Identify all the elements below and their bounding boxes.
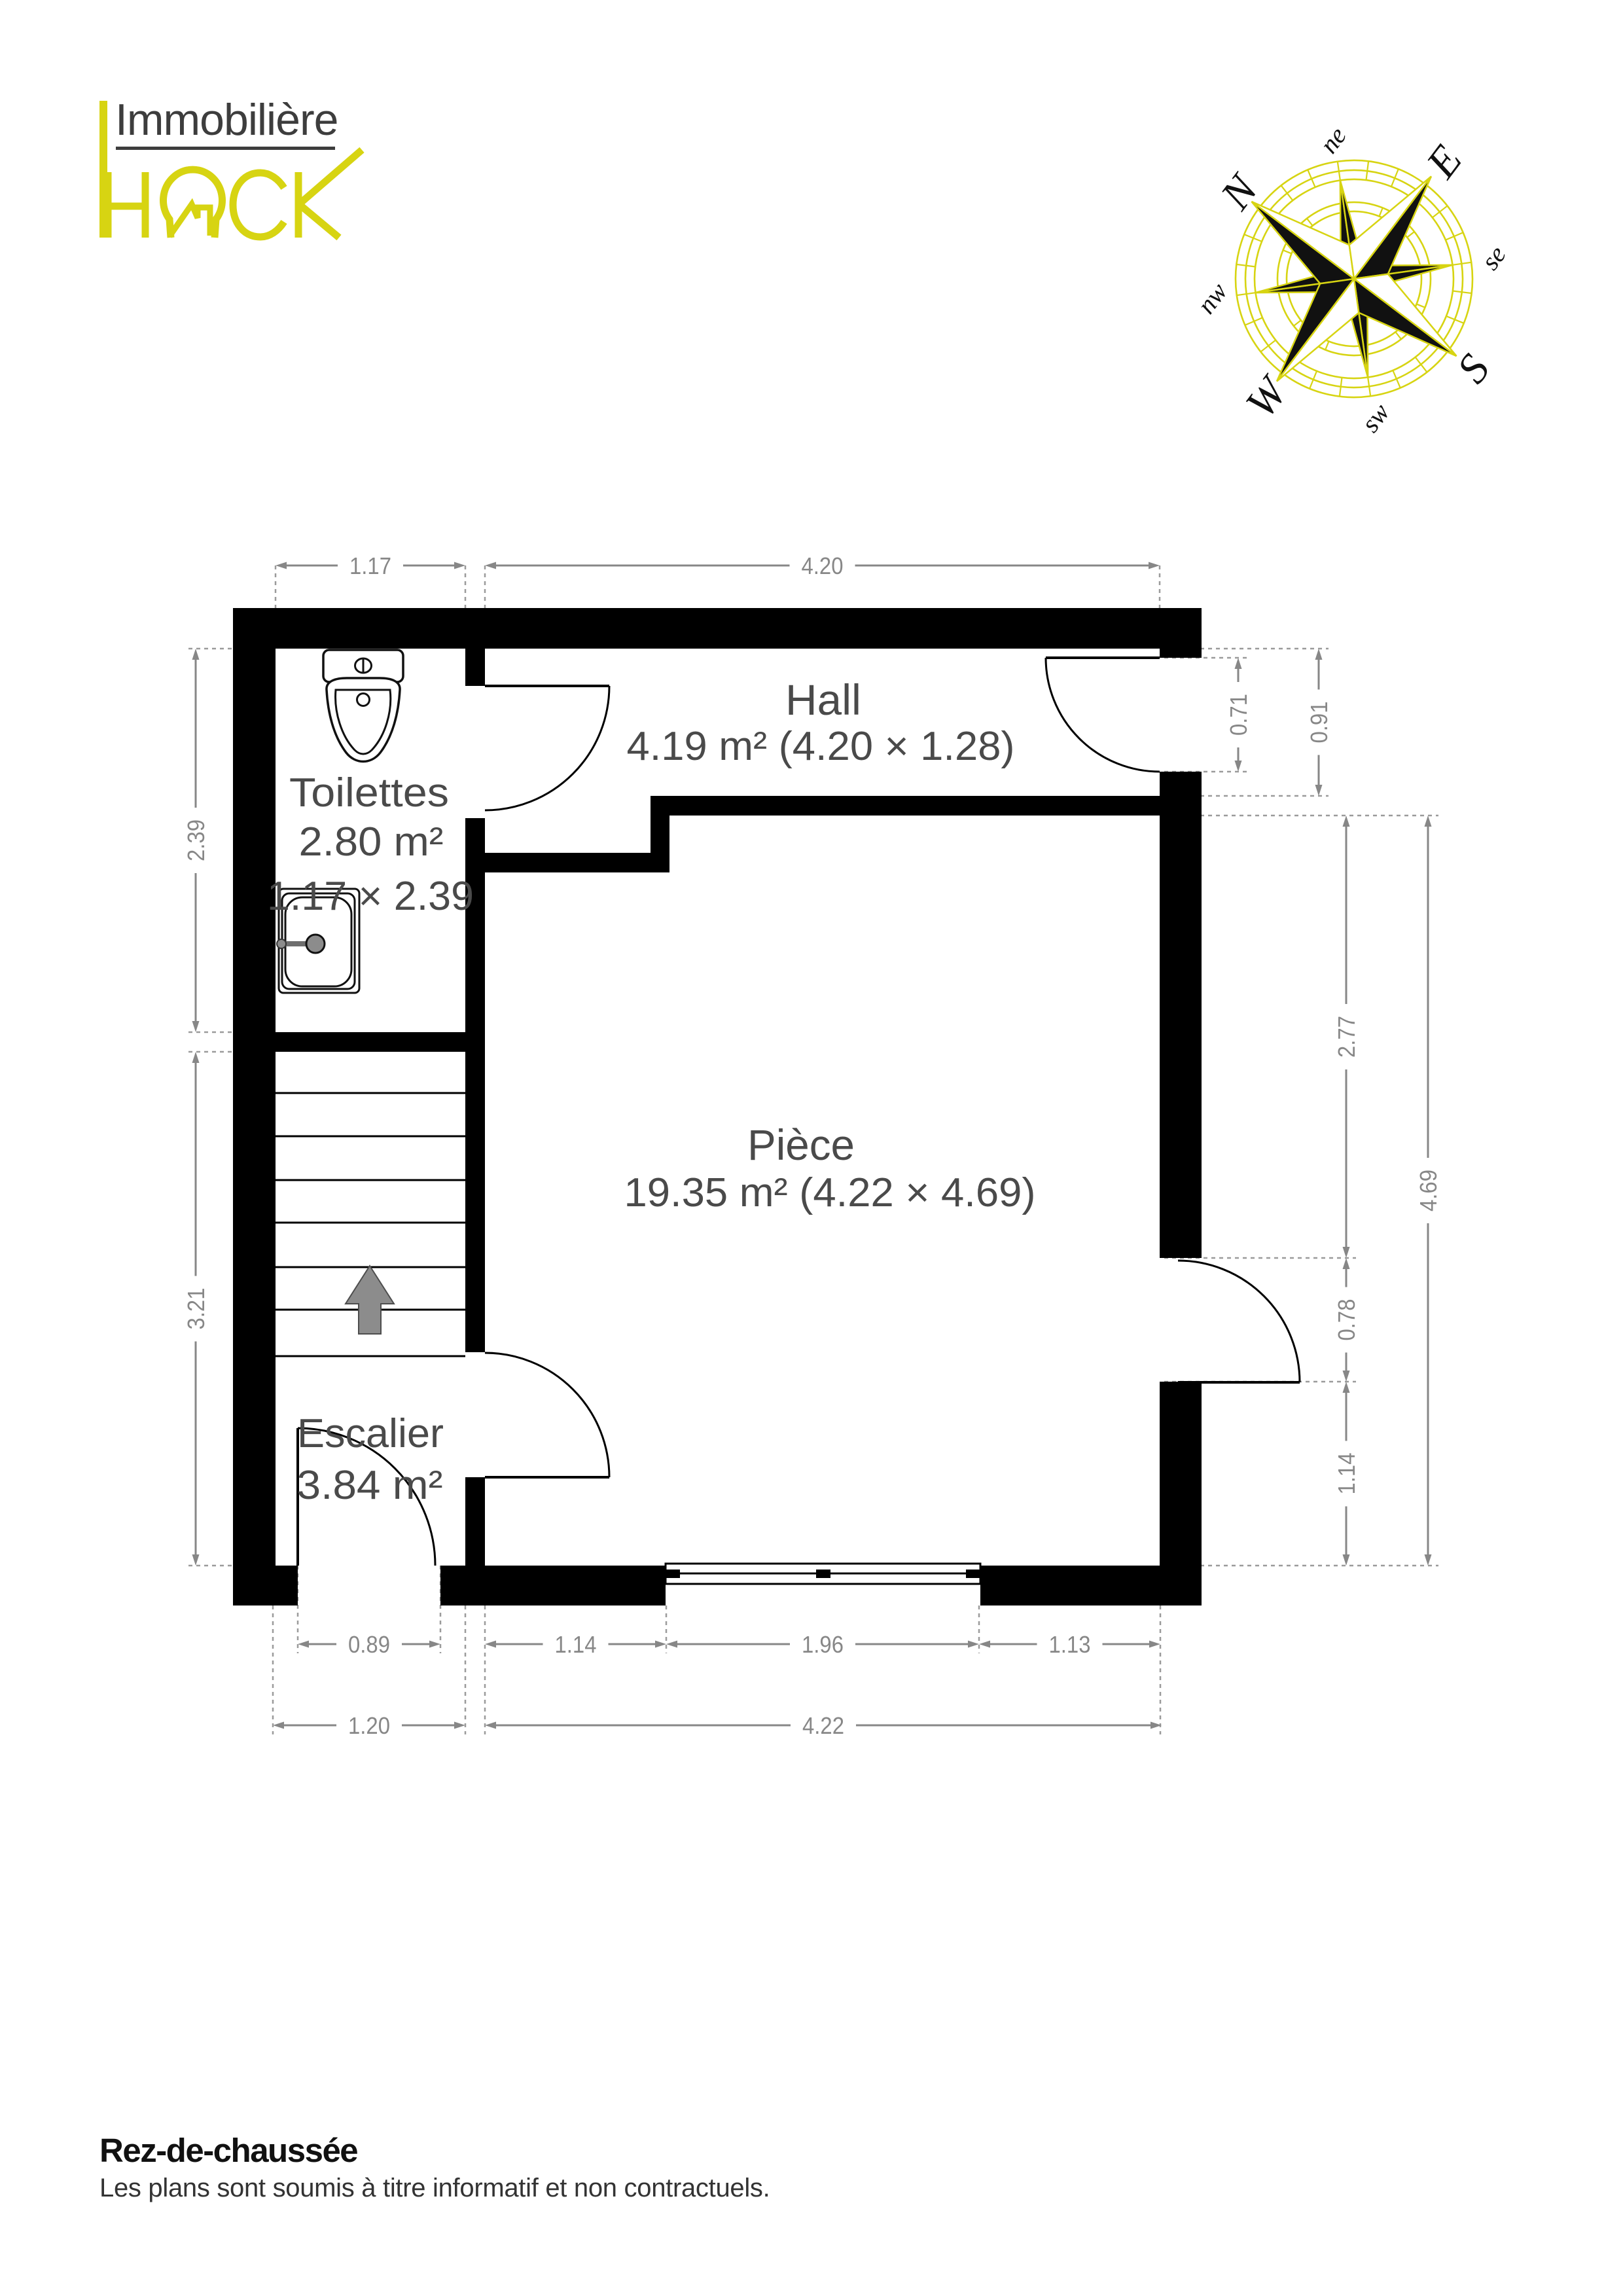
svg-text:0.78: 0.78	[1333, 1299, 1360, 1341]
svg-text:3.84 m²: 3.84 m²	[297, 1463, 443, 1508]
svg-text:0.89: 0.89	[348, 1631, 390, 1658]
svg-text:3.21: 3.21	[183, 1288, 209, 1330]
svg-text:Pièce: Pièce	[747, 1121, 855, 1169]
svg-text:2.80 m²: 2.80 m²	[299, 819, 444, 865]
svg-text:Hall: Hall	[785, 675, 861, 724]
svg-text:1.13: 1.13	[1049, 1631, 1091, 1658]
svg-text:4.20: 4.20	[802, 552, 844, 579]
svg-text:1.17 × 2.39: 1.17 × 2.39	[267, 874, 474, 919]
svg-text:4.19 m² (4.20 × 1.28): 4.19 m² (4.20 × 1.28)	[627, 724, 1015, 769]
svg-text:1.20: 1.20	[348, 1712, 390, 1739]
svg-text:Escalier: Escalier	[297, 1411, 444, 1456]
svg-text:2.39: 2.39	[183, 819, 209, 861]
svg-text:0.91: 0.91	[1306, 702, 1332, 744]
svg-text:1.17: 1.17	[349, 552, 391, 579]
svg-text:Les plans sont soumis à titre: Les plans sont soumis à titre informatif…	[99, 2174, 770, 2202]
svg-text:19.35 m² (4.22 × 4.69): 19.35 m² (4.22 × 4.69)	[624, 1170, 1036, 1215]
svg-text:1.14: 1.14	[1333, 1453, 1360, 1495]
svg-text:Toilettes: Toilettes	[289, 770, 449, 816]
svg-text:4.69: 4.69	[1415, 1170, 1442, 1211]
svg-text:Rez-de-chaussée: Rez-de-chaussée	[99, 2132, 357, 2169]
svg-text:1.14: 1.14	[555, 1631, 597, 1658]
svg-text:4.22: 4.22	[802, 1712, 844, 1739]
svg-text:1.96: 1.96	[802, 1631, 844, 1658]
svg-text:Immobilière: Immobilière	[115, 95, 338, 145]
svg-text:2.77: 2.77	[1333, 1016, 1360, 1058]
svg-text:0.71: 0.71	[1225, 694, 1252, 736]
